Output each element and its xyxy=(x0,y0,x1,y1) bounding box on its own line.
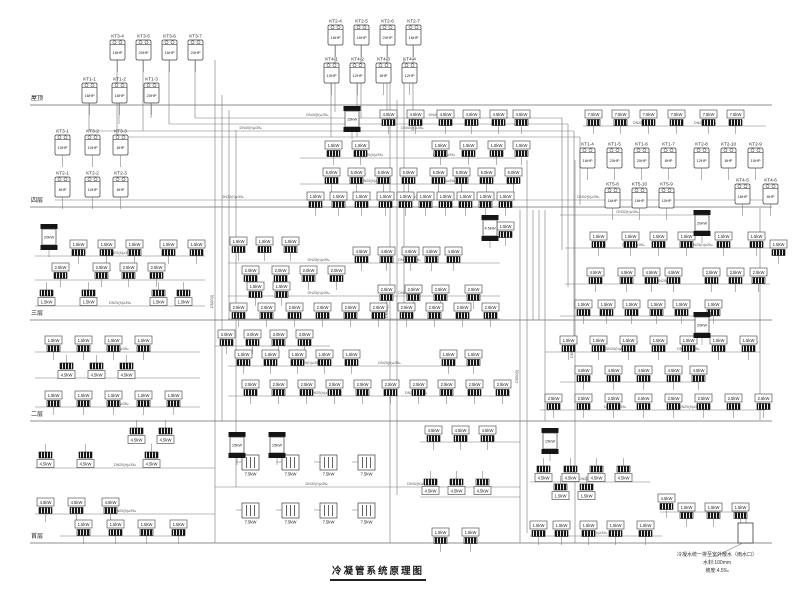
fcu-capacity-label: 1.5kW xyxy=(681,234,693,239)
drain-pan-box xyxy=(77,346,90,352)
kt-unit-id: KT4-4 xyxy=(403,57,416,62)
fcu-capacity-label: 1.5kW xyxy=(743,338,755,343)
pipe-label: DN32(h)≥3‰ xyxy=(222,195,245,199)
ahu-capacity-label: 20kW xyxy=(697,221,707,226)
drain-pan-box xyxy=(652,346,665,352)
drain-pan-box xyxy=(345,360,358,366)
kt-hp-label: 16HP xyxy=(112,50,122,55)
fcu-capacity-label: 2.5kW xyxy=(151,265,163,270)
drain-pan-box xyxy=(717,242,730,248)
pipe-label: DN25(h)≥3‰ xyxy=(109,301,132,305)
fcu-capacity-label: 4.5kW xyxy=(383,112,395,117)
fcu-capacity-label: 1.5kW xyxy=(380,194,392,199)
fcu-capacity-label: 5.0kW xyxy=(508,170,520,175)
fcu-capacity-label: 4.5kW xyxy=(693,368,705,373)
kt-unit-id: KT2-1 xyxy=(56,171,69,176)
drain-pan-box xyxy=(60,363,73,369)
drain-pan-box xyxy=(70,508,83,514)
drain-pan-box xyxy=(440,390,453,396)
fcu-capacity-label: 4.5kW xyxy=(410,112,422,117)
fcu-capacity-label: 2.5kW xyxy=(698,396,710,401)
fcu-capacity-label: 1.5kW xyxy=(440,194,452,199)
drain-pan-box xyxy=(582,531,595,537)
pipe-label: DN32(h)≥3‰ xyxy=(577,195,600,199)
fcu-capacity-label: 5.0kW xyxy=(433,170,445,175)
drain-pan-box xyxy=(537,466,550,472)
cassette-capacity-label: 7.5kW xyxy=(245,472,257,477)
condensate-schematic: 屋顶四层三层二层首层DN40(h)≥3‰DN40(h)≥3‰DN40(h)≥3‰… xyxy=(0,0,800,600)
fcu-capacity-label: 2.0kW xyxy=(275,268,287,273)
drain-pan-box xyxy=(609,531,622,537)
fcu-capacity-label: 3.0kW xyxy=(221,332,233,337)
kt-unit-id: KT2-5 xyxy=(355,19,368,24)
fcu-capacity-label: 2.5kW xyxy=(273,382,285,387)
fcu-capacity-label: 4.5kW xyxy=(661,496,673,501)
kt-unit-id: KT2-6 xyxy=(381,19,394,24)
fcu-capacity-label: 1.5kW xyxy=(276,284,288,289)
fcu-capacity-label: 1.5kW xyxy=(480,194,492,199)
fcu-capacity-label: 4.5kW xyxy=(608,368,620,373)
fcu-capacity-label: 1.5kW xyxy=(78,522,90,527)
cassette-capacity-label: 7.5kW xyxy=(245,520,257,525)
fcu-capacity-label: 4.5kW xyxy=(668,270,680,275)
ahu-capacity-label: 20kW xyxy=(697,323,707,328)
ahu-top-bar xyxy=(542,428,559,433)
fcu-capacity-label: 1.5kW xyxy=(651,302,663,307)
drain-pan-box xyxy=(220,340,233,346)
fcu-capacity-label: 1.5kW xyxy=(500,224,512,229)
fcu-capacity-label: 1.5kW xyxy=(578,302,590,307)
drain-pan-box xyxy=(82,290,95,296)
kt-unit-id: KT1-7 xyxy=(662,142,675,147)
fcu-capacity-label: 2.5kW xyxy=(96,265,108,270)
drain-pan-box xyxy=(667,278,680,284)
drain-pan-box xyxy=(622,346,635,352)
fcu-capacity-label: 1.5kW xyxy=(625,234,637,239)
drain-pan-box xyxy=(734,513,747,519)
fcu-capacity-label: 2.5kW xyxy=(233,305,245,310)
kt-hp-label: 16HP xyxy=(114,93,124,98)
drain-pan-box xyxy=(272,340,285,346)
drain-pan-box xyxy=(467,360,480,366)
ahu-top-bar xyxy=(694,210,711,215)
drain-pan-box xyxy=(645,278,658,284)
pipe-label: DN25(h)≥3‰ xyxy=(378,361,401,365)
fcu-capacity-label: 1.5kW xyxy=(191,242,203,247)
pipe-label: DN32(h)≥3‰ xyxy=(616,210,639,214)
fcu-capacity-label: 4.5kW xyxy=(638,368,650,373)
kt-hp-label: 16HP xyxy=(164,50,174,55)
fcu-capacity-label: 4.5kW xyxy=(466,112,478,117)
drain-pan-box xyxy=(419,202,432,208)
fcu-capacity-label: 1.5kW xyxy=(500,194,512,199)
drain-pan-box xyxy=(325,178,338,184)
fcu-capacity-label: 3.0kW xyxy=(247,332,259,337)
drain-pan-box xyxy=(729,120,742,126)
drain-pan-box xyxy=(464,538,477,544)
drain-pan-box xyxy=(54,273,67,279)
drain-pan-box xyxy=(592,346,605,352)
kt-hp-label: 8HP xyxy=(117,187,125,192)
drain-pan-box xyxy=(258,247,271,253)
kt-unit-id: KT5-10 xyxy=(632,182,648,187)
fcu-capacity-label: 1.5kW xyxy=(435,143,447,148)
fcu-capacity-label: 1.5kW xyxy=(468,352,480,357)
fcu-capacity-label: 4.5kW xyxy=(477,489,489,494)
fcu-capacity-label: 2.5kW xyxy=(55,265,67,270)
kt-hp-label: 16HP xyxy=(84,93,94,98)
kt-unit-id: KT1-6 xyxy=(635,142,648,147)
drain-pan-box xyxy=(675,310,688,316)
drain-pan-box xyxy=(562,346,575,352)
ahu-bottom-bar xyxy=(694,231,711,236)
drain-pan-box xyxy=(130,428,143,434)
drain-pan-box xyxy=(382,120,395,126)
fcu-capacity-label: 1.5kW xyxy=(735,505,747,510)
drain-pan-box xyxy=(697,404,710,410)
drain-pan-box xyxy=(355,257,368,263)
drain-pan-box xyxy=(455,178,468,184)
fcu-capacity-label: 1.5kW xyxy=(583,523,595,528)
drain-pan-box xyxy=(468,390,481,396)
drain-pan-box xyxy=(479,202,492,208)
fcu-capacity-label: 4.5kW xyxy=(482,428,494,433)
drain-pan-box xyxy=(465,120,478,126)
drain-pan-box xyxy=(190,250,203,256)
drain-pan-box xyxy=(480,178,493,184)
fcu-capacity-label: 2.5kW xyxy=(638,396,650,401)
fcu-capacity-label: 1.5kW xyxy=(346,352,358,357)
fcu-capacity-label: 2.5kW xyxy=(381,287,393,292)
fcu-capacity-label: 1.5kW xyxy=(110,522,122,527)
drain-pan-box xyxy=(442,360,455,366)
fcu-capacity-label: 1.5kW xyxy=(173,522,185,527)
drain-note-line-1: 冷凝水统一排至室外散水（雨水口） xyxy=(652,552,782,560)
drain-pan-box xyxy=(432,178,445,184)
drawing-title: 冷凝管系统原理图 xyxy=(330,563,426,581)
fcu-capacity-label: 1.5kW xyxy=(676,302,688,307)
drain-pan-box xyxy=(439,120,452,126)
drain-pan-box xyxy=(680,513,693,519)
kt-unit-id: KT5-9 xyxy=(660,182,673,187)
floor-label: 屋顶 xyxy=(31,95,43,102)
drain-pan-box xyxy=(244,390,257,396)
kt-hp-label: 16HP xyxy=(582,158,592,163)
drain-pan-box xyxy=(379,202,392,208)
fcu-capacity-label: 1.5kW xyxy=(751,234,763,239)
fcu-capacity-label: 1.5kW xyxy=(400,194,412,199)
fcu-capacity-label: 1.5kW xyxy=(138,338,150,343)
fcu-capacity-label: 2.5kW xyxy=(261,305,273,310)
fcu-capacity-label: 1.5kW xyxy=(420,194,432,199)
drain-pan-box xyxy=(577,376,590,382)
fcu-capacity-label: 1.5kW xyxy=(593,234,605,239)
drain-pan-box xyxy=(667,376,680,382)
kt-hp-label: 8HP xyxy=(767,194,775,199)
drain-pan-box xyxy=(172,530,185,536)
drain-pan-box xyxy=(600,310,613,316)
fcu-capacity-label: 5.0kW xyxy=(456,170,468,175)
fcu-capacity-label: 4.5kW xyxy=(565,476,577,481)
drain-pan-box xyxy=(272,390,285,396)
fcu-capacity-label: 4.5kW xyxy=(425,489,437,494)
drain-pan-box xyxy=(507,178,520,184)
fcu-capacity-label: 4.5kW xyxy=(405,249,417,254)
fcu-capacity-label: 7.5kW xyxy=(703,112,715,117)
drain-pan-box xyxy=(434,151,447,157)
drain-note-line-3: 坡度:4.5‰ xyxy=(652,568,782,576)
drain-pan-box xyxy=(128,250,141,256)
fcu-capacity-label: 2.5kW xyxy=(301,382,313,387)
fcu-capacity-label: 4.5kW xyxy=(538,476,550,481)
pipe-label: DN40(h)≥3‰ xyxy=(401,126,424,130)
kt-unit-id: KT1-5 xyxy=(608,142,621,147)
kt-hp-label: 16HP xyxy=(737,194,747,199)
fcu-capacity-label: 2.5kW xyxy=(469,382,481,387)
fcu-capacity-label: 2.5kW xyxy=(457,305,469,310)
fcu-capacity-label: 1.5kW xyxy=(153,300,165,305)
drain-pan-box xyxy=(47,346,60,352)
pipe-label: DN25(h)≥3‰ xyxy=(307,258,330,262)
fcu-capacity-label: 4.5kW xyxy=(493,112,505,117)
cassette-capacity-label: 7.5kW xyxy=(361,520,373,525)
fcu-capacity-label: 5.0kW xyxy=(326,170,338,175)
fcu-capacity-label: 1.5kW xyxy=(355,143,367,148)
ahu-capacity-label: 15kW xyxy=(347,117,357,122)
drain-pan-box xyxy=(140,530,153,536)
kt-hp-label: 8HP xyxy=(59,187,67,192)
ahu-capacity-label: 15kW xyxy=(232,443,242,448)
drain-pan-box xyxy=(167,401,180,407)
fcu-capacity-label: 2.5kW xyxy=(345,305,357,310)
drain-pan-box xyxy=(47,401,60,407)
fcu-capacity-label: 1.5kW xyxy=(556,523,568,528)
fcu-capacity-label: 2.5kW xyxy=(730,270,742,275)
drain-pan-box xyxy=(427,436,440,442)
drain-pan-box xyxy=(515,120,528,126)
drain-pan-box xyxy=(620,278,633,284)
fcu-capacity-label: 4.5kW xyxy=(131,438,143,443)
drain-pan-box xyxy=(327,151,340,157)
kt-unit-id: KT4-5 xyxy=(736,178,749,183)
kt-hp-label: 10HP xyxy=(57,145,67,150)
fcu-capacity-label: 2.5kW xyxy=(548,396,560,401)
drain-pan-box xyxy=(407,295,420,301)
drain-pan-box xyxy=(249,292,262,298)
fcu-capacity-label: 4.5kW xyxy=(381,249,393,254)
drain-outlet-box xyxy=(738,523,753,543)
fcu-capacity-label: 1.5kW xyxy=(491,143,503,148)
fcu-capacity-label: 2.5kW xyxy=(413,382,425,387)
drain-pan-box xyxy=(705,278,718,284)
drain-pan-box xyxy=(752,278,765,284)
drain-pan-box xyxy=(77,401,90,407)
ahu-bottom-bar xyxy=(229,453,246,458)
kt-unit-id: KT3-1 xyxy=(56,129,69,134)
drain-pan-box xyxy=(412,390,425,396)
drain-pan-box xyxy=(298,340,311,346)
drain-pan-box xyxy=(104,508,117,514)
drain-pan-box xyxy=(177,290,190,296)
drain-pan-box xyxy=(372,313,385,319)
drain-pan-box xyxy=(680,242,693,248)
drain-pan-box xyxy=(652,242,665,248)
drain-pan-box xyxy=(137,401,150,407)
kt-unit-id: KT4-1 xyxy=(325,57,338,62)
fcu-capacity-label: 2.5kW xyxy=(385,382,397,387)
fcu-capacity-label: 1.5kW xyxy=(718,234,730,239)
drain-pan-box xyxy=(264,360,277,366)
fcu-capacity-label: 2.5kW xyxy=(578,396,590,401)
kt-unit-id: KT2-8 xyxy=(695,142,708,147)
drain-pan-box xyxy=(354,151,367,157)
drain-pan-box xyxy=(400,313,413,319)
drain-pan-box xyxy=(456,313,469,319)
drain-pan-box xyxy=(72,250,85,256)
fcu-capacity-label: 2.5kW xyxy=(435,287,447,292)
drain-pan-box xyxy=(90,363,103,369)
ahu-bottom-bar xyxy=(694,333,711,338)
kt-hp-label: 16HP xyxy=(408,35,418,40)
ahu-top-bar xyxy=(229,432,246,437)
fcu-capacity-label: 7.5kW xyxy=(588,112,600,117)
drain-pan-box xyxy=(577,310,590,316)
kt-hp-label: 20HP xyxy=(382,35,392,40)
drain-pan-box xyxy=(637,376,650,382)
drain-pan-box xyxy=(682,346,695,352)
kt-hp-label: 12HP xyxy=(352,73,362,78)
floor-label: 首层 xyxy=(31,532,43,540)
drain-pan-box xyxy=(350,178,363,184)
drain-pan-box xyxy=(637,404,650,410)
drain-pan-box xyxy=(772,250,785,256)
kt-hp-label: 20HP xyxy=(138,50,148,55)
drain-pan-box xyxy=(590,466,603,472)
fcu-capacity-label: 1.5kW xyxy=(48,393,60,398)
drain-pan-box xyxy=(625,310,638,316)
drain-pan-box xyxy=(77,530,90,536)
drain-pan-box xyxy=(79,452,92,458)
fcu-capacity-label: 1.5kW xyxy=(563,338,575,343)
fcu-capacity-label: 2.0kW xyxy=(245,268,257,273)
fcu-capacity-label: 1.5kW xyxy=(265,352,277,357)
fcu-capacity-label: 1.5kW xyxy=(533,523,545,528)
fcu-capacity-label: 1.5kW xyxy=(681,505,693,510)
fcu-capacity-label: 4.5kW xyxy=(578,368,590,373)
fcu-capacity-label: 5.0kW xyxy=(351,170,363,175)
fcu-capacity-label: 2.5kW xyxy=(668,396,680,401)
drain-pan-box xyxy=(564,466,577,472)
drain-pan-box xyxy=(150,273,163,279)
ahu-bottom-bar xyxy=(269,453,286,458)
pipe-label: DN40(h)≥3‰ xyxy=(239,126,262,130)
kt-hp-label: 12HP xyxy=(404,73,414,78)
drain-pan-box xyxy=(447,257,460,263)
fcu-capacity-label: 4.5kW xyxy=(448,249,460,254)
drain-pan-box xyxy=(107,346,120,352)
pipe-label: DN25(h)≥3‰ xyxy=(690,243,713,247)
drain-pan-box xyxy=(577,404,590,410)
drain-pan-box xyxy=(355,202,368,208)
fcu-capacity-label: 4.5kW xyxy=(121,373,133,378)
drain-pan-box xyxy=(237,360,250,366)
drain-pan-box xyxy=(275,292,288,298)
fcu-capacity-label: 4.5kW xyxy=(61,373,73,378)
pipe-label: DN50(l) xyxy=(515,369,519,383)
drain-pan-box xyxy=(109,530,122,536)
kt-unit-id: KT2-3 xyxy=(114,171,127,176)
floor-label: 二层 xyxy=(31,411,43,418)
kt-unit-id: KT2-2 xyxy=(86,171,99,176)
drain-pan-box xyxy=(274,276,287,282)
fcu-capacity-label: 4.5kW xyxy=(71,500,83,505)
fcu-capacity-label: 2.5kW xyxy=(408,287,420,292)
ahu-top-bar xyxy=(41,224,58,229)
drain-pan-box xyxy=(592,242,605,248)
drain-pan-box xyxy=(589,278,602,284)
kt-unit-id: KT2-10 xyxy=(721,142,737,147)
fcu-capacity-label: 4.5kW xyxy=(516,112,528,117)
drain-pan-box xyxy=(499,232,512,238)
drain-pan-box xyxy=(328,390,341,396)
kt-unit-id: KT1-1 xyxy=(83,77,96,82)
fcu-capacity-label: 4.5kW xyxy=(80,462,92,467)
drain-pan-box xyxy=(459,202,472,208)
drain-pan-box xyxy=(145,452,158,458)
drain-pan-box xyxy=(481,436,494,442)
fcu-capacity-label: 1.5kW xyxy=(465,530,477,535)
drain-pan-box xyxy=(547,404,560,410)
fcu-capacity-label: 2.0kW xyxy=(331,268,343,273)
kt-unit-id: KT3-7 xyxy=(189,34,202,39)
drain-pan-box xyxy=(100,250,113,256)
drain-pan-box xyxy=(650,310,663,316)
pipe-label: DN50(l) xyxy=(210,294,214,308)
kt-unit-id: KT2-7 xyxy=(407,19,420,24)
fcu-capacity-label: 2.5kW xyxy=(706,270,718,275)
fcu-capacity-label: 5.0kW xyxy=(481,170,493,175)
drain-pan-box xyxy=(302,276,315,282)
fcu-capacity-label: 4.5kW xyxy=(40,462,52,467)
fcu-capacity-label: 1.5kW xyxy=(129,242,141,247)
drain-pan-box xyxy=(587,120,600,126)
drain-pan-box xyxy=(300,390,313,396)
drain-pan-box xyxy=(614,120,627,126)
drain-pan-box xyxy=(288,313,301,319)
drain-pan-box xyxy=(607,404,620,410)
kt-hp-label: 20HP xyxy=(146,93,156,98)
drain-pan-box xyxy=(384,390,397,396)
drain-pan-box xyxy=(490,151,503,157)
ahu-capacity-label: 20kW xyxy=(44,235,54,240)
ahu-capacity-label: 4.5kW xyxy=(484,226,496,231)
drain-pan-box xyxy=(309,202,322,208)
fcu-capacity-label: 1.5kW xyxy=(516,143,528,148)
drain-pan-box xyxy=(428,313,441,319)
drain-pan-box xyxy=(330,276,343,282)
drain-pan-box xyxy=(727,404,740,410)
fcu-capacity-label: 7.5kW xyxy=(671,112,683,117)
fcu-capacity-label: 4.5kW xyxy=(426,249,438,254)
drain-pan-box xyxy=(246,340,259,346)
fcu-capacity-label: 5.0kW xyxy=(378,170,390,175)
drain-pan-box xyxy=(532,531,545,537)
fcu-capacity-label: 1.5kW xyxy=(640,523,652,528)
fcu-capacity-label: 4.5kW xyxy=(160,438,172,443)
kt-hp-label: 10HP xyxy=(87,145,97,150)
fcu-capacity-label: 2.5kW xyxy=(753,270,765,275)
fcu-capacity-label: 4.5kW xyxy=(668,368,680,373)
